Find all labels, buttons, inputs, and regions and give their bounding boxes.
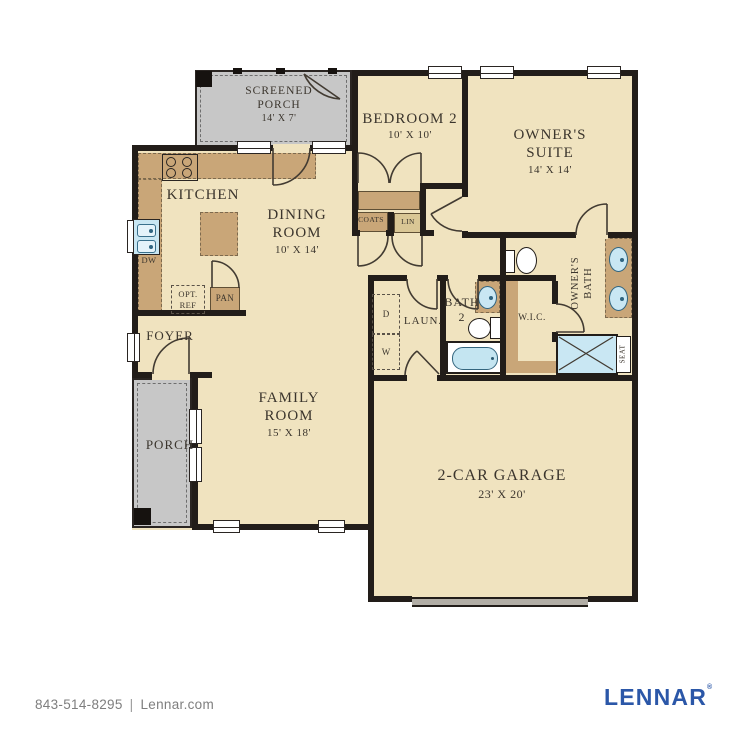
owners-suite-label: OWNER'S SUITE 14' X 14' xyxy=(513,126,586,177)
door-opening xyxy=(407,374,437,382)
pantry-label: PAN xyxy=(216,293,234,304)
coats-label: COATS xyxy=(358,215,384,224)
door-opening xyxy=(552,304,558,332)
foyer-label: FOYER xyxy=(146,328,194,344)
bath2-label: BATH 2 xyxy=(444,295,479,324)
porch-tick xyxy=(233,68,242,74)
door-opening xyxy=(358,182,420,190)
dining-room-label: DINING ROOM 10' X 14' xyxy=(267,206,326,257)
porch-label: PORCH xyxy=(146,437,194,453)
opt-ref-label: REF xyxy=(178,300,197,310)
garage-label: 2-CAR GARAGE 23' X 20' xyxy=(438,466,567,501)
sink-basin xyxy=(137,224,156,237)
screened-porch-label: SCREENED PORCH 14' X 7' xyxy=(245,84,312,125)
family-room-dims: 15' X 18' xyxy=(259,427,320,440)
dryer-label: D xyxy=(383,309,390,319)
door-opening xyxy=(576,231,608,239)
owners-bath-label: OWNER'S BATH xyxy=(569,256,595,309)
website-text: Lennar.com xyxy=(140,697,214,712)
kitchen-label: KITCHEN xyxy=(167,186,240,204)
registered-mark: ® xyxy=(707,684,713,691)
window xyxy=(428,66,462,79)
stove xyxy=(162,154,198,181)
wall xyxy=(352,72,358,236)
wall xyxy=(420,189,426,236)
toilet-tank xyxy=(490,317,501,339)
porch-tick xyxy=(328,68,337,74)
toilet-tank xyxy=(505,250,515,273)
wall xyxy=(552,281,558,304)
optional-refrigerator: OPT. REF xyxy=(171,285,205,314)
floor-plan: OPT. REF D W xyxy=(0,0,745,731)
dryer-box: D xyxy=(372,294,400,334)
wall xyxy=(632,70,638,602)
porch-tick xyxy=(276,68,285,74)
window xyxy=(480,66,514,79)
footer-separator: | xyxy=(130,697,134,712)
floor-garage xyxy=(368,530,638,602)
porch-post xyxy=(134,508,151,525)
door-opening xyxy=(407,274,437,282)
window xyxy=(587,66,621,79)
shower xyxy=(556,334,618,375)
washer-label: W xyxy=(382,347,391,357)
wall xyxy=(462,232,638,238)
wic-shelving-left xyxy=(506,281,518,373)
family-room-label: FAMILY ROOM 15' X 18' xyxy=(259,389,320,440)
hall-closet-shelf xyxy=(358,191,420,210)
garage-dims: 23' X 20' xyxy=(438,487,567,502)
toilet-bowl xyxy=(516,247,537,274)
lennar-logo: LENNAR® xyxy=(604,684,713,711)
footer-contact: 843-514-8295|Lennar.com xyxy=(35,697,214,712)
washer-box: W xyxy=(372,334,400,370)
linen-label: LIN xyxy=(401,217,415,226)
bedroom2-label: BEDROOM 2 10' X 10' xyxy=(362,110,457,143)
bathtub xyxy=(446,341,502,374)
window xyxy=(127,333,140,362)
dishwasher-label: DW xyxy=(142,255,157,265)
door-opening xyxy=(273,144,310,152)
door-opening xyxy=(448,274,478,282)
stove-burner xyxy=(166,157,176,167)
laundry-label: LAUN. xyxy=(404,315,442,328)
garage-door-panel xyxy=(412,597,588,607)
window xyxy=(318,520,345,533)
screened-porch-dims: 14' X 7' xyxy=(245,113,312,125)
wall xyxy=(462,72,468,189)
wic-shelving-bottom xyxy=(506,361,556,373)
stove-burner xyxy=(182,157,192,167)
dining-room-dims: 10' X 14' xyxy=(267,244,326,257)
vanity-sink xyxy=(609,286,628,311)
kitchen-sink xyxy=(133,219,160,255)
vanity-sink xyxy=(478,286,497,309)
stove-burner xyxy=(166,168,176,178)
door-opening xyxy=(152,371,190,380)
window xyxy=(312,141,346,154)
phone-number: 843-514-8295 xyxy=(35,697,123,712)
shower-seat-label: SEAT xyxy=(619,345,628,364)
door-opening xyxy=(462,197,468,231)
sink-basin xyxy=(137,240,156,253)
kitchen-island xyxy=(200,212,238,256)
stove-burner xyxy=(182,168,192,178)
opt-ref-label: OPT. xyxy=(178,289,197,299)
wall xyxy=(388,212,394,236)
window xyxy=(237,141,271,154)
wic-label: W.I.C. xyxy=(518,313,546,325)
owners-suite-dims: 14' X 14' xyxy=(513,164,586,177)
porch-dashed-line xyxy=(137,383,187,523)
window xyxy=(213,520,240,533)
front-porch-area xyxy=(132,378,192,528)
bedroom2-dims: 10' X 10' xyxy=(362,129,457,142)
vanity-sink xyxy=(609,247,628,272)
porch-post xyxy=(196,71,212,87)
